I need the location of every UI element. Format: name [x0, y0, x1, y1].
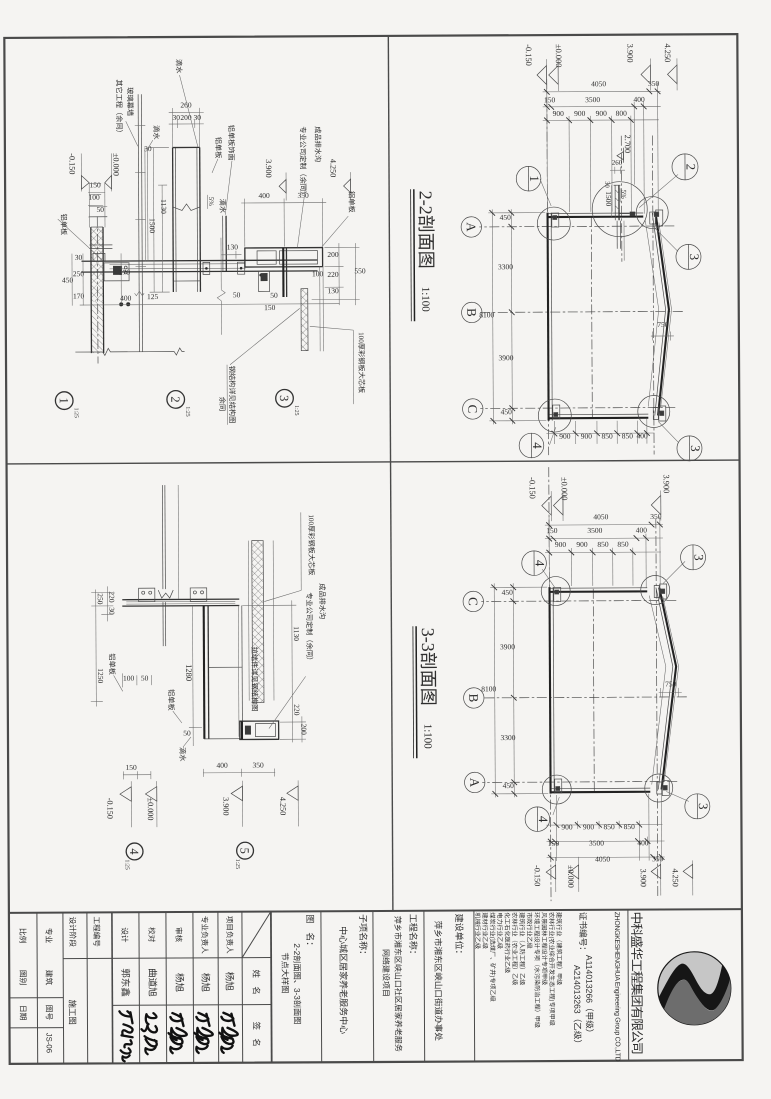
svg-text:成品排水沟: 成品排水沟 — [318, 583, 327, 619]
svg-text:1250: 1250 — [96, 668, 105, 683]
svg-text:3300: 3300 — [498, 262, 513, 271]
svg-text:150: 150 — [125, 763, 137, 772]
svg-text:900: 900 — [596, 109, 608, 118]
svg-text:±0.000: ±0.000 — [566, 865, 575, 888]
svg-text:签 名: 签 名 — [251, 1022, 261, 1047]
svg-text:400: 400 — [120, 294, 132, 303]
svg-text:钢结构详见结构图: 钢结构详见结构图 — [228, 366, 237, 424]
svg-text:4050: 4050 — [591, 79, 606, 88]
svg-text:比例: 比例 — [18, 928, 28, 944]
svg-text:专业公司定制（余同）: 专业公司定制（余同） — [305, 592, 314, 664]
svg-text:杨旭: 杨旭 — [223, 972, 235, 992]
svg-text:铝单板: 铝单板 — [214, 137, 223, 159]
svg-text:萍乡市湘东区峡山口街道办事处: 萍乡市湘东区峡山口街道办事处 — [433, 921, 445, 1042]
svg-text:150: 150 — [548, 839, 560, 848]
svg-text:100: 100 — [312, 269, 324, 278]
svg-text:3: 3 — [688, 445, 703, 452]
svg-text:机械行业乙级: 机械行业乙级 — [474, 912, 482, 949]
svg-text:350: 350 — [648, 79, 660, 88]
svg-text:220: 220 — [292, 704, 301, 716]
svg-text:3500: 3500 — [585, 95, 600, 104]
svg-text:4: 4 — [127, 848, 141, 855]
svg-text:风景园林工程设计专项甲级: 风景园林工程设计专项甲级 — [540, 912, 548, 985]
svg-text:C: C — [465, 405, 480, 414]
svg-text:5: 5 — [238, 848, 252, 854]
svg-text:150: 150 — [546, 526, 558, 535]
svg-text:1:25: 1:25 — [73, 408, 79, 418]
svg-text:中心城区居家养老服务中心: 中心城区居家养老服务中心 — [338, 926, 350, 1034]
svg-text:-0.150: -0.150 — [528, 477, 537, 499]
svg-text:150: 150 — [89, 180, 101, 189]
svg-text:850: 850 — [622, 431, 634, 440]
svg-text:100厚彩钢板大芯板: 100厚彩钢板大芯板 — [357, 332, 366, 393]
svg-text:5%: 5% — [620, 190, 627, 199]
svg-text:220: 220 — [107, 591, 116, 603]
svg-text:750: 750 — [657, 320, 669, 329]
svg-text:3500: 3500 — [589, 839, 604, 848]
svg-text:250: 250 — [73, 269, 85, 278]
svg-text:900: 900 — [583, 822, 595, 831]
svg-text:证书编号：: 证书编号： — [578, 912, 589, 955]
svg-text:3.900: 3.900 — [221, 797, 230, 815]
svg-text:850: 850 — [604, 822, 616, 831]
svg-text:200: 200 — [327, 250, 339, 259]
svg-text:铝单板: 铝单板 — [347, 191, 356, 213]
svg-text:项目负责人: 项目负责人 — [225, 916, 235, 954]
svg-text:-0.150: -0.150 — [524, 44, 533, 66]
svg-text:3900: 3900 — [500, 642, 515, 651]
svg-text:3.900: 3.900 — [264, 159, 273, 177]
svg-text:-0.150: -0.150 — [105, 798, 114, 819]
svg-text:4050: 4050 — [595, 855, 610, 864]
svg-text:50: 50 — [183, 729, 191, 738]
svg-text:30: 30 — [172, 113, 180, 122]
svg-text:1: 1 — [57, 397, 71, 403]
svg-text:50: 50 — [233, 290, 241, 299]
svg-text:审核: 审核 — [174, 927, 184, 943]
svg-text:170: 170 — [73, 292, 85, 301]
svg-text:450: 450 — [501, 407, 513, 416]
svg-text:30: 30 — [193, 113, 201, 122]
svg-text:成品排水沟: 成品排水沟 — [313, 126, 322, 162]
svg-text:200: 200 — [299, 724, 308, 736]
svg-text:4.250: 4.250 — [278, 797, 287, 815]
svg-text:750: 750 — [665, 679, 677, 688]
svg-text:400: 400 — [636, 431, 648, 440]
svg-text:市政行业乙级: 市政行业乙级 — [525, 912, 533, 949]
svg-text:450: 450 — [502, 588, 514, 597]
svg-text:姓 名: 姓 名 — [251, 970, 261, 995]
svg-text:50: 50 — [141, 674, 149, 683]
svg-text:施工图: 施工图 — [67, 1000, 77, 1025]
svg-text:图号: 图号 — [44, 1005, 53, 1021]
svg-text:130: 130 — [227, 243, 239, 252]
svg-text:800: 800 — [616, 109, 628, 118]
svg-text:900: 900 — [574, 109, 586, 118]
svg-text:±0.000: ±0.000 — [111, 153, 120, 176]
svg-text:4: 4 — [536, 816, 551, 823]
svg-text:2-2剖面图: 2-2剖面图 — [416, 191, 436, 269]
svg-text:设计阶段: 设计阶段 — [68, 917, 78, 948]
svg-text:850: 850 — [597, 540, 609, 549]
svg-text:铝单板饰面: 铝单板饰面 — [227, 125, 236, 161]
svg-text:4: 4 — [533, 560, 548, 567]
svg-text:±0.000: ±0.000 — [560, 477, 569, 500]
svg-text:其它工程（余同）: 其它工程（余同） — [115, 79, 124, 137]
svg-text:化工石化医药行业乙级: 化工石化医药行业乙级 — [503, 912, 511, 973]
svg-text:3-3剖面图: 3-3剖面图 — [418, 628, 438, 706]
svg-text:1:25: 1:25 — [184, 406, 190, 416]
svg-text:环境工程设计专项（水污染防治工程）甲级: 环境工程设计专项（水污染防治工程）甲级 — [533, 912, 542, 1028]
svg-text:3.900: 3.900 — [662, 474, 671, 493]
svg-text:专业: 专业 — [44, 928, 54, 944]
svg-text:杨旭: 杨旭 — [199, 973, 211, 993]
svg-text:900: 900 — [561, 822, 573, 831]
svg-text:1500: 1500 — [148, 218, 157, 233]
svg-text:工程编号: 工程编号 — [92, 916, 102, 947]
svg-text:滴水: 滴水 — [174, 59, 183, 73]
svg-text:1:100: 1:100 — [421, 724, 433, 750]
svg-text:260: 260 — [612, 159, 623, 167]
svg-text:350: 350 — [252, 761, 264, 770]
svg-text:杨旭: 杨旭 — [173, 973, 185, 993]
svg-text:建材行业乙级: 建材行业乙级 — [481, 912, 489, 949]
svg-text:4.250: 4.250 — [328, 159, 337, 177]
svg-text:日期: 日期 — [18, 1005, 27, 1021]
svg-text:850: 850 — [617, 540, 629, 549]
svg-text:±0.000: ±0.000 — [146, 798, 155, 821]
svg-text:350: 350 — [652, 854, 664, 863]
svg-text:中科盛华工程集团有限公司: 中科盛华工程集团有限公司 — [629, 912, 645, 1054]
svg-text:900: 900 — [555, 540, 567, 549]
svg-text:B: B — [464, 308, 479, 317]
svg-text:郭东鑫: 郭东鑫 — [119, 968, 131, 997]
svg-text:B: B — [466, 694, 481, 703]
svg-text:2-2剖面图、3-3剖面图: 2-2剖面图、3-3剖面图 — [292, 943, 302, 1024]
svg-text:2.700: 2.700 — [623, 135, 632, 153]
svg-text:铝单板: 铝单板 — [167, 689, 176, 711]
svg-text:C: C — [466, 597, 481, 606]
svg-text:1:25: 1:25 — [124, 859, 130, 869]
svg-text:A: A — [467, 778, 482, 788]
svg-text:1:100: 1:100 — [419, 287, 431, 313]
svg-text:工程名称：: 工程名称： — [408, 914, 419, 959]
svg-text:节点大样图: 节点大样图 — [280, 952, 290, 993]
svg-text:农林行业（农业工程）乙级: 农林行业（农业工程）乙级 — [511, 912, 519, 985]
svg-text:萍乡市湘东区峡山口社区居家养老服务: 萍乡市湘东区峡山口社区居家养老服务 — [393, 916, 404, 1052]
svg-text:A: A — [464, 222, 479, 232]
svg-text:100厚彩钢板大芯板: 100厚彩钢板大芯板 — [307, 514, 316, 575]
svg-text:2: 2 — [168, 396, 182, 402]
svg-text:170: 170 — [119, 268, 131, 277]
svg-text:850: 850 — [601, 432, 613, 441]
svg-text:滴水: 滴水 — [152, 125, 161, 139]
svg-text:3: 3 — [687, 254, 702, 261]
svg-text:1:25: 1:25 — [293, 405, 299, 415]
svg-text:400: 400 — [258, 191, 270, 200]
svg-text:-0.150: -0.150 — [67, 153, 76, 174]
svg-text:3: 3 — [696, 803, 711, 810]
svg-text:1: 1 — [527, 175, 542, 182]
svg-text:3500: 3500 — [587, 526, 602, 535]
svg-text:3.900: 3.900 — [639, 869, 648, 887]
svg-text:50: 50 — [270, 291, 278, 300]
svg-text:1:25: 1:25 — [234, 859, 240, 869]
svg-text:农林行业(农业综合开发生态工程)专项甲级: 农林行业(农业综合开发生态工程)专项甲级 — [548, 912, 557, 1026]
svg-text:130: 130 — [327, 286, 339, 295]
svg-text:30: 30 — [603, 181, 610, 188]
svg-text:3: 3 — [277, 395, 291, 401]
svg-text:30: 30 — [75, 253, 83, 262]
svg-text:100: 100 — [89, 193, 101, 202]
svg-text:125: 125 — [147, 292, 159, 301]
svg-text:拉结件详见钢结构图: 拉结件详见钢结构图 — [250, 647, 259, 712]
svg-text:建筑: 建筑 — [44, 970, 54, 986]
svg-text:专业公司定制（余同）: 专业公司定制（余同） — [298, 126, 307, 198]
svg-text:4050: 4050 — [593, 512, 608, 521]
svg-text:1130: 1130 — [159, 199, 168, 214]
svg-text:JS-06: JS-06 — [45, 1033, 54, 1053]
svg-text:3.900: 3.900 — [625, 44, 634, 63]
svg-text:3900: 3900 — [498, 353, 513, 362]
svg-text:校对: 校对 — [147, 927, 157, 943]
svg-text:400: 400 — [634, 95, 646, 104]
svg-text:900: 900 — [581, 432, 593, 441]
svg-text:-0.150: -0.150 — [533, 865, 542, 886]
svg-text:4.250: 4.250 — [663, 43, 672, 62]
svg-text:图 名：: 图 名： — [305, 914, 316, 950]
svg-text:曲道旭: 曲道旭 — [146, 968, 158, 997]
svg-text:滴水: 滴水 — [178, 747, 187, 761]
svg-text:ZHONGKESHENGHUA Engineering Gr: ZHONGKESHENGHUA Engineering Group CO.,LT… — [613, 912, 621, 1062]
svg-text:1500: 1500 — [604, 191, 613, 206]
svg-text:900: 900 — [576, 540, 588, 549]
svg-text:220: 220 — [327, 270, 339, 279]
svg-text:4: 4 — [530, 442, 545, 449]
svg-text:450: 450 — [503, 781, 515, 790]
svg-text:建筑行业（人防工程）乙级: 建筑行业（人防工程）乙级 — [518, 912, 526, 985]
svg-text:1130: 1130 — [292, 626, 301, 641]
svg-text:子项名称：: 子项名称： — [358, 914, 369, 959]
svg-text:450: 450 — [62, 276, 74, 285]
svg-text:4.250: 4.250 — [671, 868, 680, 886]
svg-text:5%: 5% — [207, 197, 214, 206]
svg-text:400: 400 — [216, 761, 228, 770]
svg-text:30: 30 — [107, 607, 116, 615]
svg-text:400: 400 — [637, 838, 649, 847]
svg-text:电力行业乙级: 电力行业乙级 — [496, 912, 504, 949]
svg-text:余同: 余同 — [218, 397, 227, 411]
svg-text:网络建设项目: 网络建设项目 — [381, 949, 391, 997]
svg-text:2: 2 — [683, 164, 698, 171]
svg-text:建筑行业（建筑工程）甲级: 建筑行业（建筑工程）甲级 — [555, 912, 563, 985]
svg-text:100: 100 — [123, 674, 135, 683]
svg-text:150: 150 — [544, 95, 556, 104]
svg-text:专业负责人: 专业负责人 — [200, 916, 210, 954]
svg-text:图别: 图别 — [18, 970, 27, 986]
svg-text:250: 250 — [96, 593, 105, 605]
svg-text:煤炭行业(选煤厂、矿井)专项乙级: 煤炭行业(选煤厂、矿井)专项乙级 — [488, 912, 496, 1001]
svg-text:550: 550 — [354, 266, 366, 275]
svg-text:1280: 1280 — [184, 664, 194, 681]
svg-text:900: 900 — [559, 432, 571, 441]
svg-text:3300: 3300 — [500, 733, 515, 742]
svg-text:A214013263（乙级）: A214013263（乙级） — [572, 965, 583, 1048]
svg-text:8100: 8100 — [481, 684, 496, 693]
svg-text:3: 3 — [692, 554, 707, 561]
svg-text:850: 850 — [624, 822, 636, 831]
svg-text:建设单位：: 建设单位： — [454, 914, 465, 959]
svg-text:滴水: 滴水 — [218, 199, 227, 213]
svg-text:400: 400 — [636, 526, 648, 535]
svg-text:玻璃幕墙: 玻璃幕墙 — [126, 87, 135, 116]
svg-text:设计: 设计 — [120, 927, 130, 943]
svg-text:450: 450 — [500, 213, 512, 222]
svg-text:A114013266（甲级）: A114013266（甲级） — [584, 955, 595, 1038]
svg-text:150: 150 — [264, 303, 276, 312]
svg-text:900: 900 — [553, 109, 565, 118]
svg-text:铝单板: 铝单板 — [108, 653, 117, 675]
